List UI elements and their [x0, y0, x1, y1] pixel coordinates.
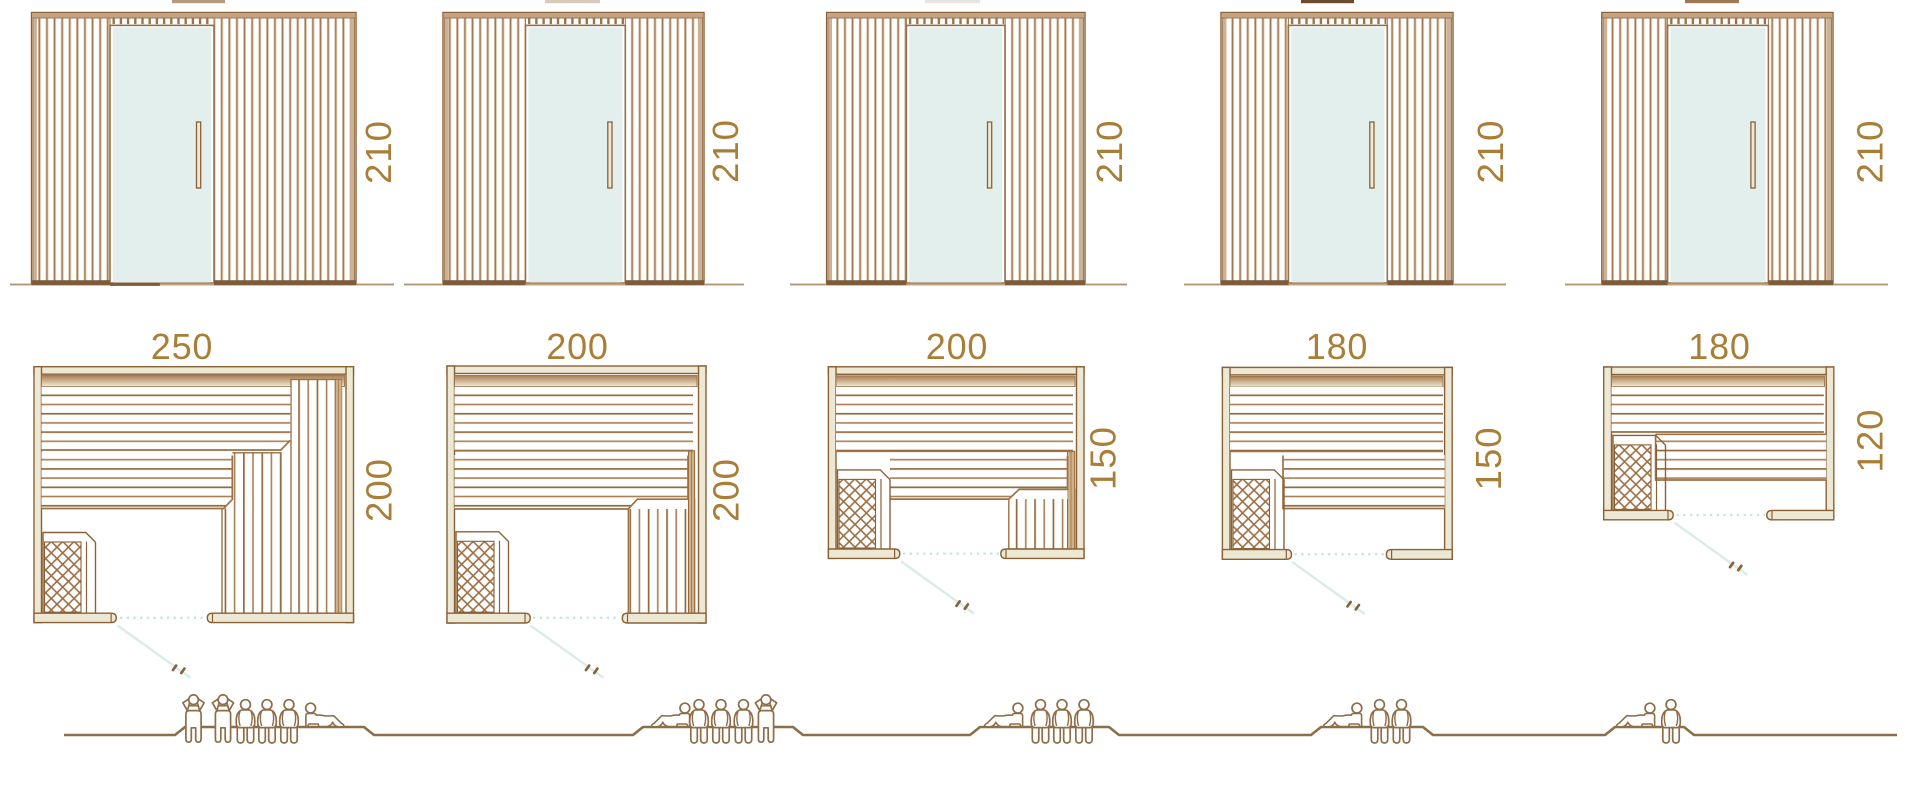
- svg-text:210: 210: [1470, 120, 1511, 184]
- svg-text:210: 210: [1850, 120, 1891, 184]
- svg-text:120: 120: [1850, 409, 1891, 473]
- svg-text:210: 210: [358, 120, 399, 184]
- svg-text:180: 180: [1688, 326, 1750, 367]
- svg-text:200: 200: [546, 326, 608, 367]
- svg-text:250: 250: [151, 326, 213, 367]
- svg-text:200: 200: [359, 458, 400, 522]
- svg-text:210: 210: [705, 119, 746, 183]
- svg-text:150: 150: [1468, 426, 1509, 490]
- svg-text:200: 200: [706, 458, 747, 522]
- svg-text:180: 180: [1306, 326, 1368, 367]
- svg-text:210: 210: [1089, 120, 1130, 184]
- svg-text:200: 200: [926, 326, 988, 367]
- svg-text:150: 150: [1083, 426, 1124, 490]
